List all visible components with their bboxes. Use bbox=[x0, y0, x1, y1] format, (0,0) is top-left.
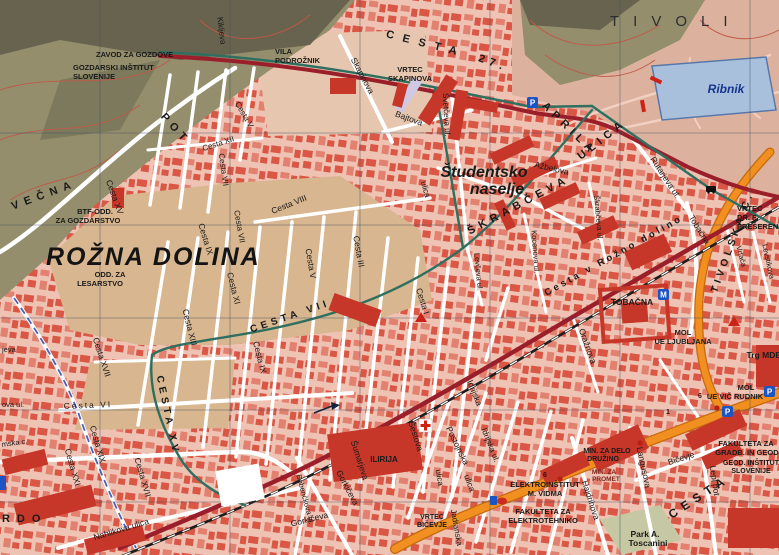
btf-odd-2-label: ZA GOZDARSTVO bbox=[56, 216, 121, 225]
mol-ljubljana-1-label: MOL bbox=[675, 328, 692, 337]
ribnik-pond-label: Ribnik bbox=[708, 82, 746, 96]
blue-marker-icon bbox=[0, 476, 6, 490]
elektroinstitut-2-label: M. VIDMA bbox=[528, 489, 563, 498]
brdo-area-label: BRDO bbox=[0, 513, 47, 525]
elektroinstitut-1-label: ELEKTROINŠTITUT bbox=[510, 480, 580, 489]
geod-institut-2-label: SLOVENIJE bbox=[731, 468, 771, 475]
tobacna-poi-label: TOBAČNA bbox=[611, 296, 653, 307]
ilirija-label: ILIRIJA bbox=[370, 455, 398, 464]
studentsko-naselje-1-label: Študentsko bbox=[440, 162, 527, 181]
ova-ul-label: ova ul. bbox=[2, 400, 24, 409]
geod-institut-1-label: GEOD. INŠTITUT bbox=[723, 458, 779, 467]
odd-za-lesarstvo-2-label: LESARSTVO bbox=[77, 279, 123, 288]
cesta-vi-label: Cesta VI bbox=[63, 399, 112, 411]
vrtec-bicevje-1-label: VRTEC bbox=[420, 514, 444, 521]
fak-elektro-1-label: FAKULTETA ZA bbox=[515, 507, 571, 516]
gozdarski-institut-1-label: GOZDARSKI INŠTITUT bbox=[73, 63, 154, 72]
parking-glyph: P bbox=[767, 388, 773, 397]
map-canvas: PPPM TIVOLIRibnikROŽNA DOLINAŠtudentskon… bbox=[0, 0, 779, 555]
rozna-dolina-area-label: ROŽNA DOLINA bbox=[46, 241, 261, 271]
route-6b-label: 6 bbox=[543, 472, 547, 479]
vrtec-skapinova-2-label: SKAPINOVA bbox=[388, 74, 433, 83]
city-map: PPPM TIVOLIRibnikROŽNA DOLINAŠtudentskon… bbox=[0, 0, 779, 555]
parking-icon: P bbox=[722, 406, 733, 417]
vila-podroznik-2-label: PODROŽNIK bbox=[275, 56, 321, 65]
mol-ljubljana-2-label: UE LJUBLJANA bbox=[654, 337, 712, 346]
route-6-label: 6 bbox=[698, 393, 702, 400]
odd-za-lesarstvo-1-label: ODD. ZA bbox=[95, 270, 126, 279]
first-aid-icon bbox=[419, 419, 432, 432]
fak-gradb-2-label: GRADB. IN GEOD. bbox=[715, 448, 779, 457]
min-delo-1-label: MIN. ZA DELO bbox=[583, 448, 631, 455]
parking-icon: P bbox=[764, 386, 775, 397]
parking-icon: P bbox=[527, 97, 538, 108]
jeva-label: jeva bbox=[1, 345, 17, 354]
park-toscanini-2-label: Toscanini bbox=[628, 538, 667, 548]
route-dot-icon bbox=[714, 405, 719, 410]
min-delo-2-label: DRUŽINO bbox=[587, 454, 619, 463]
gozdarski-institut-2-label: SLOVENIJE bbox=[73, 72, 115, 81]
route-dot-icon bbox=[637, 440, 642, 445]
trg-mdb-label: Trg MDB bbox=[747, 350, 779, 360]
tivoli-area-label: TIVOLI bbox=[610, 13, 742, 30]
zavod-za-gozdove-label: ZAVOD ZA GOZDOVE bbox=[96, 50, 173, 59]
studentsko-naselje-2-label: naselje bbox=[470, 181, 524, 198]
mol-vic-2-label: UE VIČ RUDNIK bbox=[707, 392, 764, 401]
parking-glyph: P bbox=[725, 408, 731, 417]
museum-glyph: M bbox=[660, 291, 667, 300]
parking-glyph: P bbox=[530, 99, 536, 108]
vrtec-skapinova-1-label: VRTEC bbox=[397, 65, 423, 74]
btf-odd-1-label: BTF-ODD. bbox=[77, 207, 113, 216]
museum-icon: M bbox=[658, 289, 669, 300]
min-promet-2-label: PROMET bbox=[592, 476, 620, 483]
route-1-label: 1 bbox=[666, 409, 670, 416]
vrtec-bicevje-2-label: BIČEVJE bbox=[417, 520, 447, 529]
min-promet-1-label: MIN. ZA bbox=[592, 469, 616, 476]
mol-vic-1-label: MOL bbox=[738, 383, 755, 392]
vila-podroznik-1-label: VILA bbox=[275, 47, 293, 56]
fak-elektro-2-label: ELEKTROTEHNIKO bbox=[508, 516, 578, 525]
fak-gradb-1-label: FAKULTETA ZA bbox=[718, 439, 774, 448]
